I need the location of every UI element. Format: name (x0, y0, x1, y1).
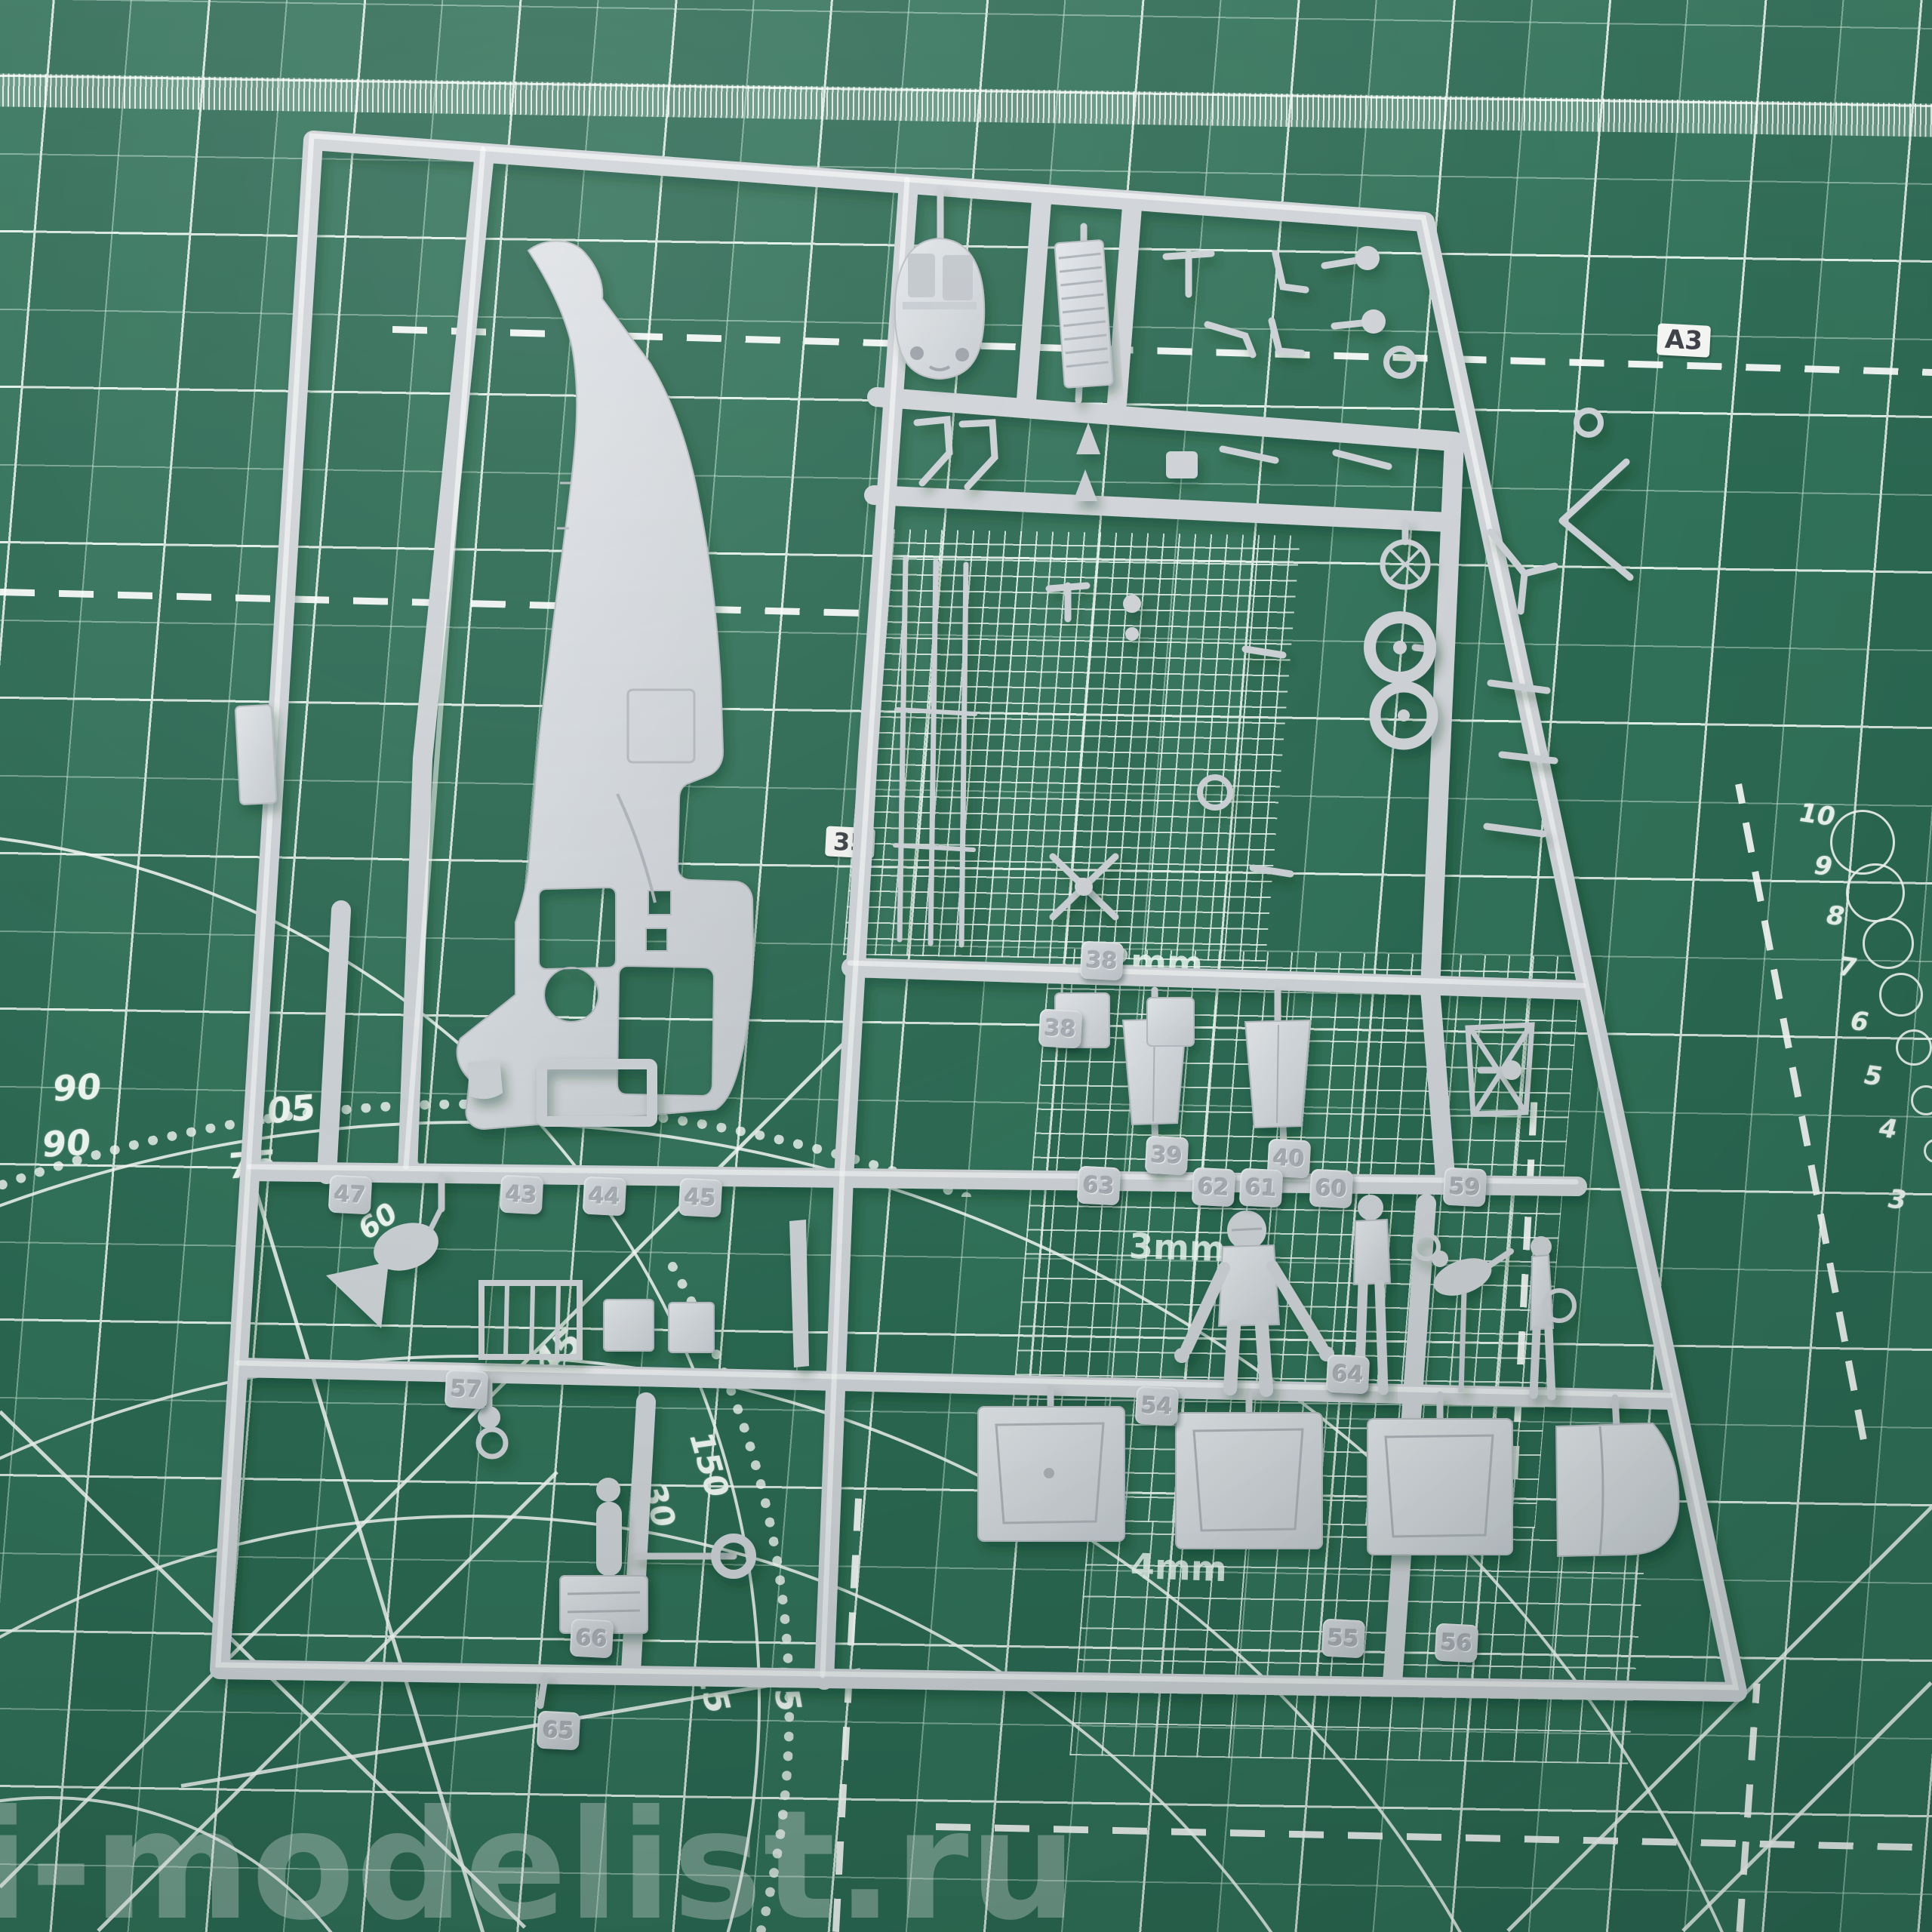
pilot-figure-sitting (1174, 1211, 1334, 1390)
part-tag-39: 39 (1145, 1136, 1189, 1176)
door-panel-parts (978, 1407, 1678, 1556)
part-tag-55: 55 (1321, 1619, 1366, 1659)
part-tag-64: 64 (1326, 1355, 1371, 1395)
cabin-roof-part (895, 238, 984, 379)
part-tag-38: 38 (1080, 941, 1124, 981)
rotor-hub-bird-part (1414, 1235, 1511, 1392)
seat-parts (1055, 993, 1310, 1128)
part-tag-61: 61 (1239, 1168, 1284, 1208)
part-tag-54: 54 (1135, 1386, 1180, 1426)
part-tag-38: 38 (1038, 1009, 1083, 1049)
part-tag-44: 44 (583, 1177, 627, 1217)
part-tag-57: 57 (445, 1370, 489, 1410)
part-tag-66: 66 (570, 1619, 614, 1659)
part-tag-62: 62 (1192, 1168, 1236, 1207)
louver-panel-part (1054, 240, 1112, 388)
photo-model-sprue-on-cutting-mat: A3359010590757060451503015651098765432mm… (0, 0, 1932, 1932)
part-tag-43: 43 (500, 1175, 544, 1215)
crew-figure-with-disc (1531, 1236, 1574, 1396)
part-tag-59: 59 (1443, 1168, 1487, 1207)
part-tag-65: 65 (537, 1711, 581, 1751)
sprue-frame-photo (0, 0, 1932, 1932)
site-watermark: i-modelist.ru (0, 1778, 1078, 1932)
fuselage-part (457, 241, 753, 1130)
part-tag-56: 56 (1435, 1623, 1479, 1663)
part-tag-63: 63 (1077, 1166, 1121, 1206)
part-tag-60: 60 (1309, 1169, 1354, 1209)
part-tag-47: 47 (328, 1175, 373, 1215)
part-tag-45: 45 (678, 1178, 723, 1218)
